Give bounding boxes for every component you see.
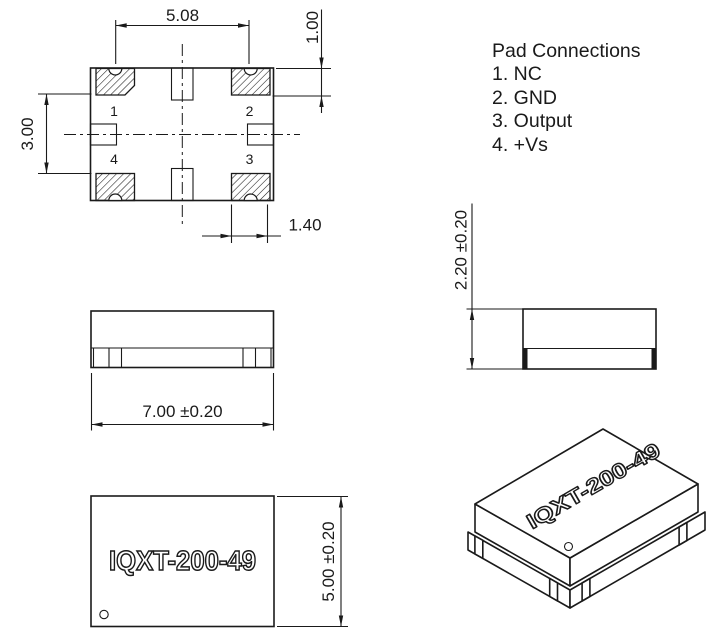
dimension-body-width: 7.00 ±0.20: [92, 373, 274, 431]
dim-body-depth-text: 5.00 ±0.20: [319, 521, 338, 601]
dimension-pad-length: 1.00: [273, 10, 332, 114]
dimension-body-height: 2.20 ±0.20: [452, 204, 524, 370]
dim-pad-span-text: 3.00: [18, 117, 37, 150]
pad-1-label: 1: [110, 103, 118, 119]
part-number-marking: IQXT-200-49: [109, 545, 256, 576]
pad-3-label: 3: [246, 151, 254, 167]
pad-connection-item-4: 4. +Vs: [492, 134, 641, 157]
pin1-indicator-dot: [100, 610, 108, 618]
side-body-outline: [523, 309, 656, 369]
dim-pad-pitch-text: 5.08: [166, 6, 199, 25]
side-view: 2.20 ±0.20: [452, 204, 657, 370]
front-view: 7.00 ±0.20: [91, 311, 274, 431]
iso-view: IQXT-200-49: [468, 429, 705, 608]
iso-castellation-notch-2: [550, 578, 558, 601]
dimension-pad-width: 1.40: [202, 205, 322, 244]
dim-body-height-text: 2.20 ±0.20: [452, 210, 471, 290]
pad-connection-item-3: 3. Output: [492, 110, 641, 133]
side-left-pad-bar: [523, 349, 528, 370]
dimension-body-depth: 5.00 ±0.20: [277, 497, 348, 627]
pad-4-label: 4: [110, 151, 118, 167]
top-view: 1 2 4 3 5.08 1.00: [18, 6, 331, 243]
pad-connections-title: Pad Connections: [492, 40, 641, 63]
dim-pad-width-text: 1.40: [288, 216, 321, 235]
pad-connections-legend: Pad Connections 1. NC 2. GND 3. Output 4…: [492, 40, 641, 157]
pad-2-label: 2: [246, 103, 254, 119]
iso-castellation-notch-4: [679, 523, 687, 546]
pad-connection-item-1: 1. NC: [492, 63, 641, 86]
dimension-pad-span: 3.00: [18, 94, 92, 174]
iso-castellation-notch-1: [475, 536, 483, 558]
dim-body-width-text: 7.00 ±0.20: [142, 402, 222, 421]
iso-castellation-notch-3: [582, 579, 590, 602]
marking-view: IQXT-200-49 5.00 ±0.20: [91, 496, 348, 627]
side-right-pad-bar: [652, 349, 657, 370]
pad-connection-item-2: 2. GND: [492, 87, 641, 110]
dim-pad-length-text: 1.00: [303, 11, 322, 44]
front-body-outline: [91, 311, 274, 368]
package-drawing-sheet: 1 2 4 3 5.08 1.00: [0, 0, 725, 634]
